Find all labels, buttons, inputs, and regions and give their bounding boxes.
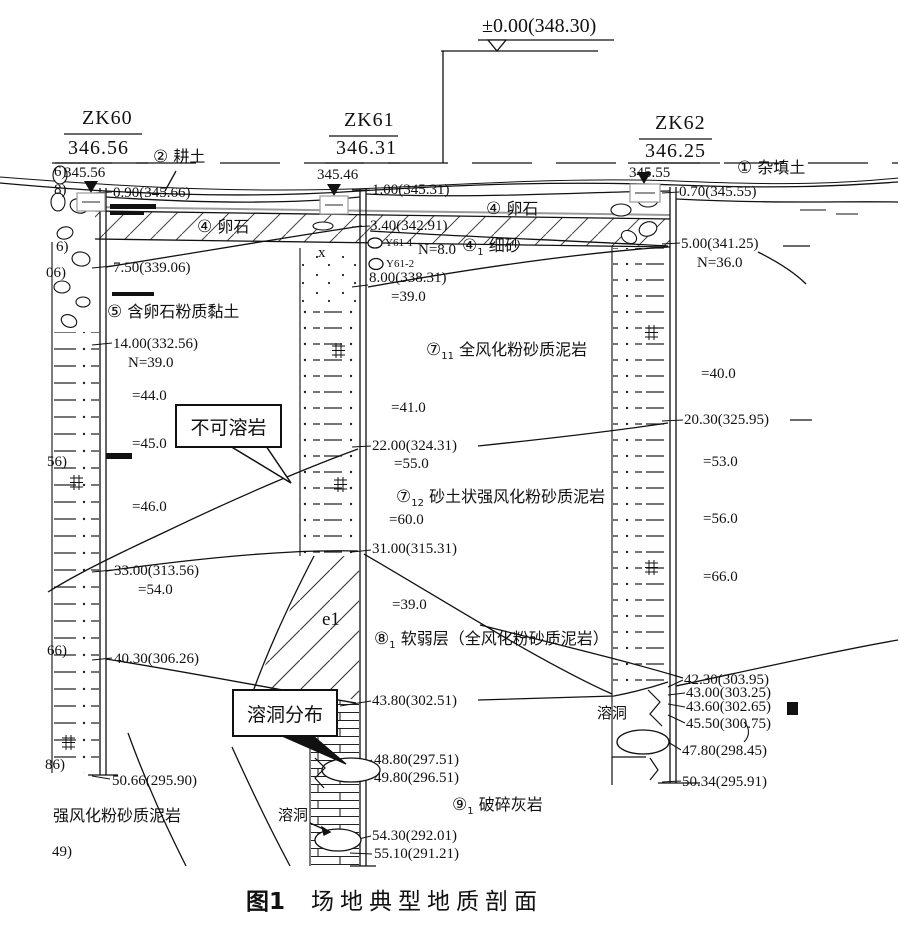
zk61-sample-label: Y61-1 [385, 238, 413, 249]
zk62-n-value: =56.0 [703, 512, 738, 527]
zk61-n-value: =39.0 [392, 598, 427, 613]
zk61-n-value: =55.0 [394, 457, 429, 472]
zk62-depth-mark: 50.34(295.91) [682, 775, 767, 790]
figure-number: 图1 [246, 889, 285, 915]
zk61-n-value: =39.0 [391, 290, 426, 305]
zk62-depth-mark: 5.00(341.25) [681, 237, 759, 252]
figure-caption: 图1场地典型地质剖面 [246, 882, 543, 916]
zk61-depth-mark: 49.80(296.51) [374, 771, 459, 786]
zk60-n-value: =54.0 [138, 583, 173, 598]
borehole-zk62-elevation: 346.25 [645, 141, 706, 161]
zk60-n-value: =46.0 [132, 500, 167, 515]
zk60-depth-mark: 7.50(339.06) [113, 261, 191, 276]
zk62-n-value: =53.0 [703, 455, 738, 470]
insoluble-rock-callout: 不可溶岩 [175, 404, 282, 448]
datum-elevation-label: ±0.00(348.30) [482, 16, 596, 36]
section-linework [0, 0, 900, 930]
zk60-depth-mark: 0.90(345.66) [113, 186, 191, 201]
water-level-icon [327, 184, 341, 196]
zk60-depth-mark: 14.00(332.56) [113, 337, 198, 352]
bottom-rock-label: 强风化粉砂质泥岩 [53, 808, 181, 824]
e1-hatch-zone [250, 556, 359, 699]
edge-fragment: 8) [54, 183, 67, 198]
borehole-zk61-label: ZK61 [344, 110, 395, 130]
edge-fragment: 6) [56, 240, 69, 255]
karst-distribution-callout: 溶洞分布 [232, 689, 338, 737]
zk61-depth-mark: 43.80(302.51) [372, 694, 457, 709]
stratum-label-luanshi-mid: ④ 卵石 [486, 201, 538, 221]
zk62-depth-mark: 20.30(325.95) [684, 413, 769, 428]
zk62-n-value: =66.0 [703, 570, 738, 585]
karst-cave-lens [617, 730, 669, 754]
zk61-depth-mark: 55.10(291.21) [374, 847, 459, 862]
geological-section-figure: ZK60 346.56 ZK61 346.31 ZK62 346.25 ±0.0… [0, 0, 900, 930]
borehole-zk62-label: ZK62 [655, 113, 706, 133]
zk60-n-value: N=39.0 [128, 356, 174, 371]
zk61-sample-label: Y61-2 [386, 259, 414, 270]
karst-cave-label: 溶洞 [597, 706, 627, 721]
zk61-n-value: N=8.0 [418, 243, 456, 258]
stratum-label-zatiantu: ① 杂填土 [737, 160, 805, 180]
sample-marker [369, 259, 383, 270]
edge-fragment: 06) [46, 266, 66, 281]
zk61-depth-mark: 22.00(324.31) [372, 439, 457, 454]
x-marker: x [318, 246, 326, 261]
stratum-label-xisha: ④1 细砂 [462, 238, 521, 258]
stratum-label-qiangfenghua: ⑦12 砂土状强风化粉砂质泥岩 [396, 489, 605, 509]
zk62-depth-mark: 43.60(302.65) [686, 700, 771, 715]
zk61-depth-mark: 54.30(292.01) [372, 829, 457, 844]
zk60-n-value: =44.0 [132, 389, 167, 404]
zk60-depth-mark: 40.30(306.26) [114, 652, 199, 667]
zk61-n-value: =60.0 [389, 513, 424, 528]
edge-fragment: 6) [54, 165, 67, 180]
zk61-depth-mark: 48.80(297.51) [374, 753, 459, 768]
stratum-label-quanfenghua: ⑦11 全风化粉砂质泥岩 [426, 342, 587, 362]
stratum-label-gengtu: ② 耕土 [153, 149, 205, 169]
zk61-depth-mark: 3.40(342.91) [370, 219, 448, 234]
stratum-label-posuihuiyan: ⑨1 破碎灰岩 [452, 797, 543, 817]
zk60-n-value: =45.0 [132, 437, 167, 452]
water-level-icon [84, 181, 98, 193]
zk62-depth-mark: 47.80(298.45) [682, 744, 767, 759]
stratum-label-hanluanshi: ⑤ 含卵石粉质黏土 [107, 304, 239, 324]
karst-cave-lens [315, 829, 361, 851]
zk62-n-value: N=36.0 [697, 256, 743, 271]
zk61-depth-mark: 1.00(345.31) [372, 183, 450, 198]
stratum-label-luanshi-left: ④ 卵石 [197, 219, 249, 239]
borehole-zk60-label: ZK60 [82, 108, 133, 128]
zk62-water-elevation: 345.55 [629, 166, 670, 181]
black-square-marker [787, 702, 798, 715]
karst-cave-lens [322, 758, 380, 782]
edge-fragment: 66) [47, 644, 67, 659]
karst-cave-label: 溶洞 [278, 808, 308, 823]
borehole-zk61-elevation: 346.31 [336, 138, 397, 158]
zk62-n-value: =40.0 [701, 367, 736, 382]
zk62-depth-mark: 45.50(300.75) [686, 717, 771, 732]
borehole-zk60-elevation: 346.56 [68, 138, 129, 158]
zk61-water-elevation: 345.46 [317, 168, 358, 183]
edge-fragment: 86) [45, 758, 65, 773]
zk61-n-value: =41.0 [391, 401, 426, 416]
zk60-depth-mark: 50.66(295.90) [112, 774, 197, 789]
zk60-water-elevation: 345.56 [64, 166, 105, 181]
zk60-depth-mark: 33.00(313.56) [114, 564, 199, 579]
zk62-depth-mark: 0.70(345.55) [679, 185, 757, 200]
zk61-depth-mark: 8.00(338.31) [369, 271, 447, 286]
stratum-label-ruanruoceng: ⑧1 软弱层（全风化粉砂质泥岩） [374, 631, 609, 651]
figure-title: 场地典型地质剖面 [311, 889, 543, 915]
e1-zone-label: e1 [322, 610, 340, 629]
sample-marker [368, 238, 382, 248]
insoluble-callout-pointer [230, 446, 291, 483]
edge-fragment: 56) [47, 455, 67, 470]
edge-fragment: 49) [52, 845, 72, 860]
zk61-depth-mark: 31.00(315.31) [372, 542, 457, 557]
